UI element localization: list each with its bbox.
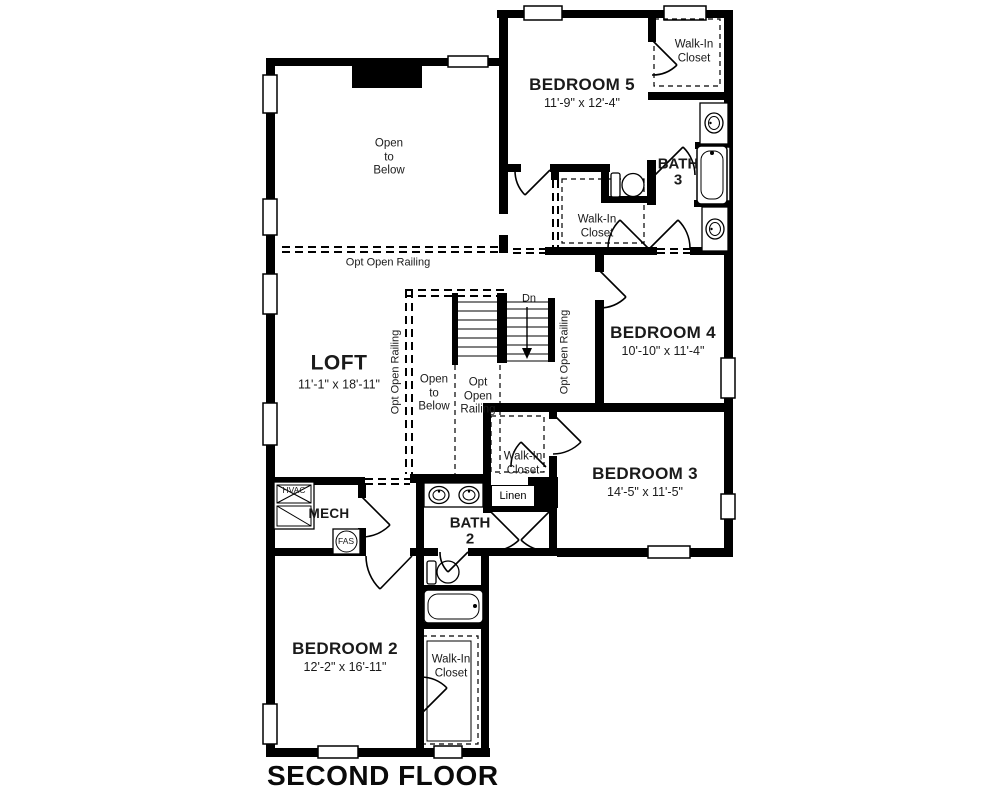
walk-in-closet-label-mid: Walk-In Closet	[578, 213, 617, 240]
opt-open-railing-label-stacked: Opt Open Railing	[460, 377, 495, 418]
room-label-loft: LOFT 11'-1" x 18'-11"	[298, 352, 380, 393]
bedroom-4-dims: 10'-10" x 11'-4"	[610, 344, 716, 359]
walk-in-closet-label-bedroom2: Walk-In Closet	[432, 653, 471, 680]
sink-vanity-icon	[700, 103, 728, 144]
loft-name: LOFT	[298, 352, 380, 377]
sink-vanity-icon	[702, 207, 728, 251]
opt-open-railing-label-top: Opt Open Railing	[346, 257, 430, 270]
room-label-mech: MECH	[309, 506, 350, 522]
bedroom-2-name: BEDROOM 2	[292, 639, 398, 659]
bathtub-icon	[697, 146, 727, 204]
floor-plan: BEDROOM 5 11'-9" x 12'-4" Walk-In Closet…	[0, 0, 1000, 800]
bedroom-3-name: BEDROOM 3	[592, 464, 698, 484]
bedroom-3-dims: 14'-5" x 11'-5"	[592, 485, 698, 500]
room-label-bath-3: BATH 3	[658, 156, 699, 188]
double-sink-vanity-icon	[424, 483, 483, 507]
stairs-dn-label: Dn	[522, 293, 536, 306]
bedroom-5-name: BEDROOM 5	[529, 75, 635, 95]
bedroom-5-dims: 11'-9" x 12'-4"	[529, 96, 635, 111]
loft-dims: 11'-1" x 18'-11"	[298, 378, 380, 393]
open-to-below-label-top: Open to Below	[373, 138, 404, 179]
bedroom-4-name: BEDROOM 4	[610, 323, 716, 343]
fas-label: FAS	[338, 536, 354, 546]
open-to-below-label-stairwell: Open to Below	[418, 374, 449, 415]
floorplan-drawing	[0, 0, 1000, 800]
bedroom-2-dims: 12'-2" x 16'-11"	[292, 660, 398, 675]
walk-in-closet-label-bedroom5: Walk-In Closet	[675, 38, 714, 65]
toilet-icon	[611, 173, 644, 197]
linen-closet-label: Linen	[491, 485, 535, 507]
room-label-bedroom-2: BEDROOM 2 12'-2" x 16'-11"	[292, 639, 398, 675]
room-label-bedroom-5: BEDROOM 5 11'-9" x 12'-4"	[529, 75, 635, 111]
opt-open-railing-label-right: Opt Open Railing	[559, 310, 572, 394]
room-label-bedroom-4: BEDROOM 4 10'-10" x 11'-4"	[610, 323, 716, 359]
room-label-bedroom-3: BEDROOM 3 14'-5" x 11'-5"	[592, 464, 698, 500]
page-title: SECOND FLOOR	[267, 760, 499, 792]
room-label-bath-2: BATH 2	[450, 515, 491, 547]
opt-open-railing-label-left: Opt Open Railing	[390, 330, 403, 414]
hvac-label: HVAC	[283, 485, 306, 495]
walk-in-closet-label-bedroom3: Walk-In Closet	[504, 450, 543, 477]
doors	[362, 40, 695, 714]
bathtub-icon	[424, 590, 483, 623]
